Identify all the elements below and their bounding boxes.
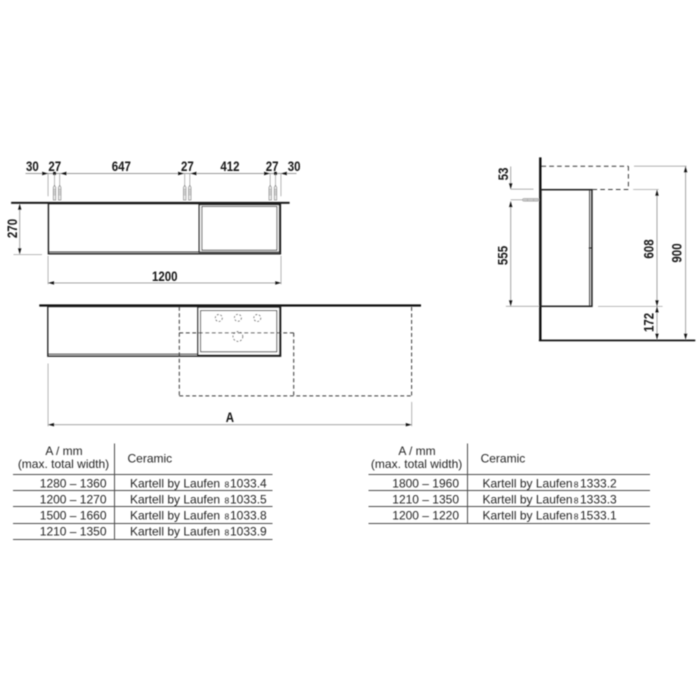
svg-text:Kartell by Laufen: Kartell by Laufen: [483, 509, 573, 523]
svg-text:1033.8: 1033.8: [230, 509, 267, 523]
svg-text:1033.9: 1033.9: [230, 525, 267, 539]
svg-text:270: 270: [4, 219, 20, 238]
svg-text:(max. total width): (max. total width): [371, 457, 462, 471]
svg-text:A: A: [226, 409, 234, 425]
svg-text:8: 8: [225, 495, 230, 505]
svg-text:30: 30: [288, 158, 301, 174]
svg-text:1280 – 1360: 1280 – 1360: [40, 476, 107, 490]
svg-text:1210 – 1350: 1210 – 1350: [40, 525, 107, 539]
svg-text:27: 27: [181, 158, 194, 174]
svg-text:1800 – 1960: 1800 – 1960: [392, 476, 459, 490]
svg-text:1033.5: 1033.5: [230, 492, 267, 506]
svg-text:647: 647: [112, 158, 131, 174]
svg-text:Kartell by Laufen: Kartell by Laufen: [130, 476, 220, 490]
svg-text:30: 30: [26, 158, 39, 174]
svg-text:27: 27: [48, 158, 61, 174]
svg-text:1210 – 1350: 1210 – 1350: [392, 492, 459, 506]
svg-text:1200 – 1220: 1200 – 1220: [392, 509, 459, 523]
svg-text:Kartell by Laufen: Kartell by Laufen: [130, 525, 220, 539]
svg-text:1500 – 1660: 1500 – 1660: [40, 509, 107, 523]
svg-text:8: 8: [574, 512, 579, 522]
svg-text:8: 8: [574, 495, 579, 505]
svg-text:1333.2: 1333.2: [580, 476, 617, 490]
svg-text:8: 8: [225, 479, 230, 489]
svg-text:Kartell by Laufen: Kartell by Laufen: [130, 492, 220, 506]
svg-text:8: 8: [225, 528, 230, 538]
svg-text:Kartell by Laufen: Kartell by Laufen: [483, 476, 573, 490]
svg-text:8: 8: [225, 512, 230, 522]
svg-text:Kartell by Laufen: Kartell by Laufen: [483, 492, 573, 506]
svg-text:555: 555: [494, 246, 510, 265]
svg-text:Ceramic: Ceramic: [481, 452, 526, 466]
svg-text:172: 172: [640, 313, 656, 332]
svg-text:1033.4: 1033.4: [230, 476, 267, 490]
svg-text:53: 53: [495, 168, 511, 181]
svg-text:900: 900: [668, 243, 684, 262]
svg-text:8: 8: [574, 479, 579, 489]
svg-text:(max. total width): (max. total width): [18, 457, 109, 471]
svg-text:412: 412: [220, 158, 239, 174]
svg-text:1200 – 1270: 1200 – 1270: [40, 492, 107, 506]
svg-text:1533.1: 1533.1: [580, 509, 617, 523]
svg-text:608: 608: [640, 239, 656, 258]
svg-text:Kartell by Laufen: Kartell by Laufen: [130, 509, 220, 523]
svg-text:1200: 1200: [152, 268, 178, 284]
svg-text:27: 27: [266, 158, 279, 174]
svg-text:1333.3: 1333.3: [580, 492, 617, 506]
svg-text:Ceramic: Ceramic: [128, 452, 173, 466]
